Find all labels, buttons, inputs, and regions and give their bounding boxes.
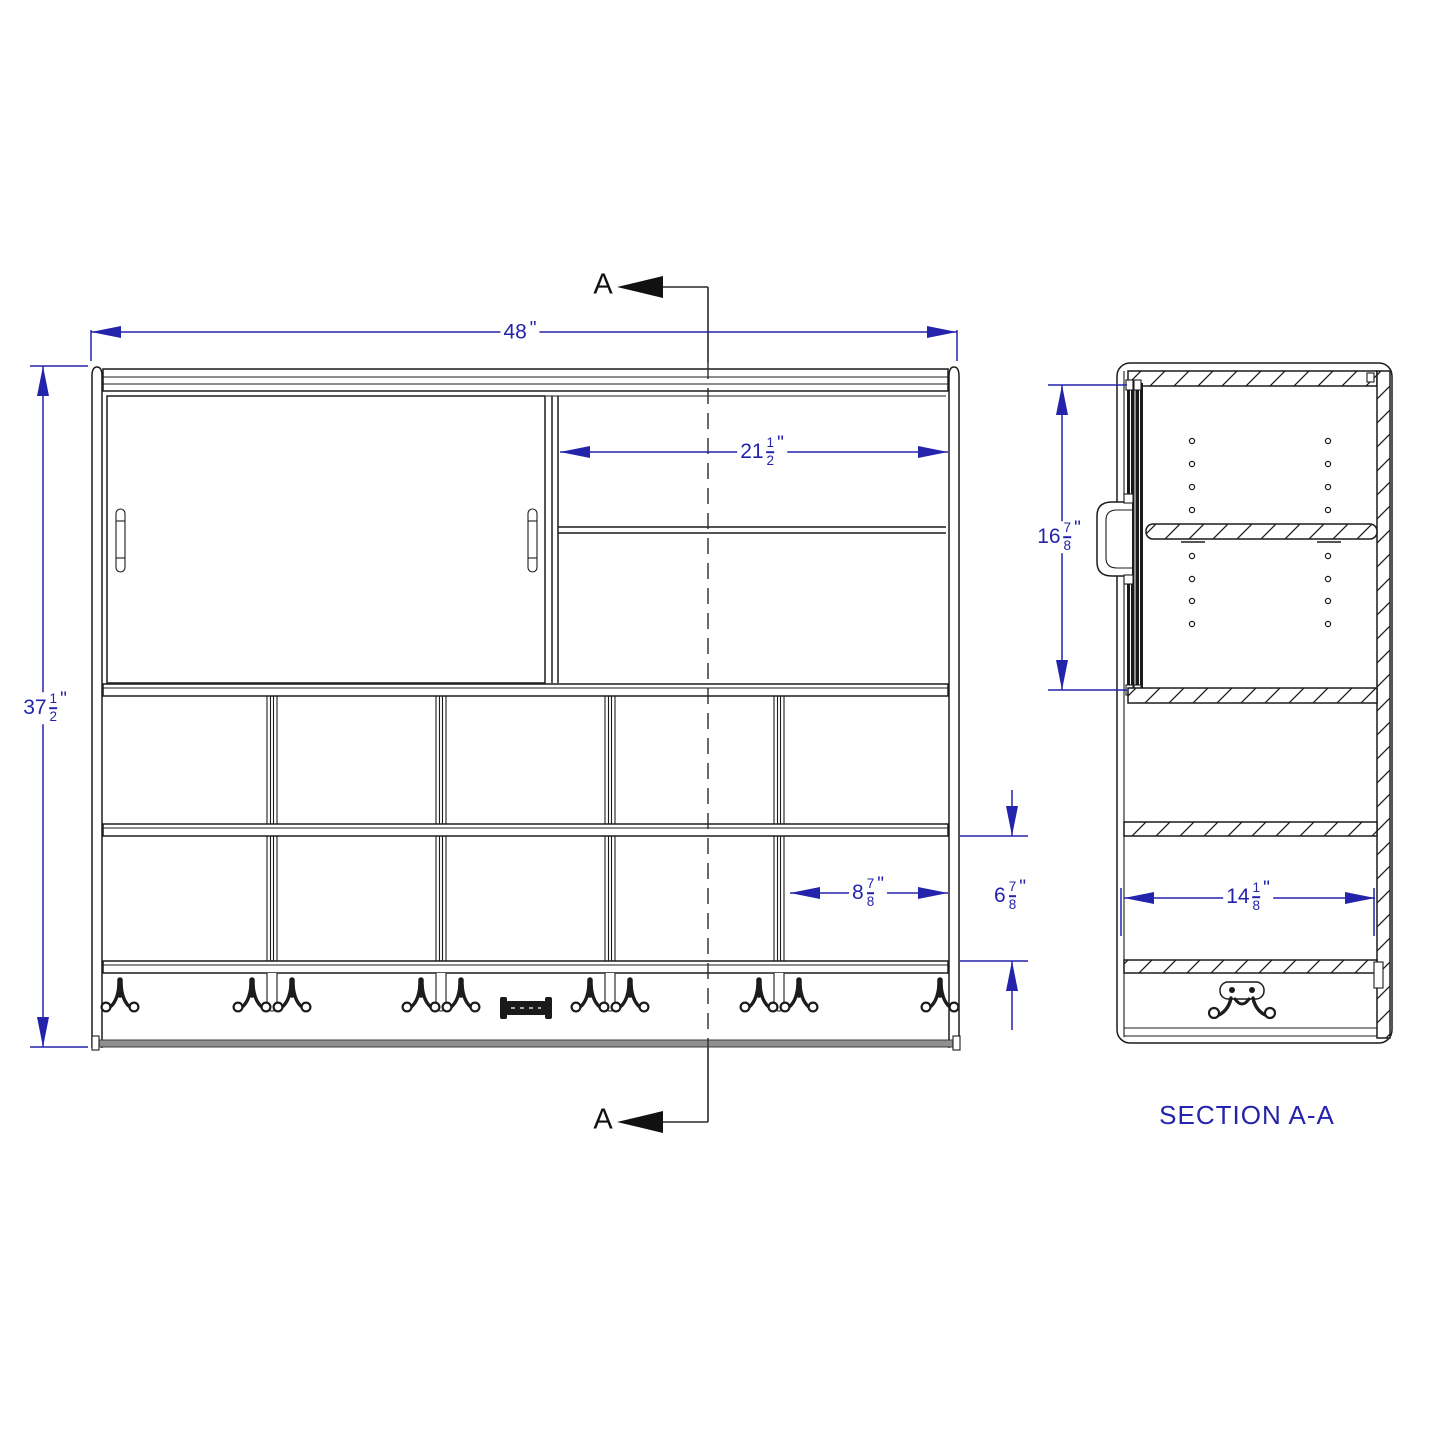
dim-door-height-label: 16 7 8 " xyxy=(1034,521,1084,553)
section-cabinet-bottom xyxy=(1128,688,1377,703)
section-marker-bottom: A xyxy=(591,1106,614,1135)
top-rail xyxy=(103,369,948,391)
section-shelf-mid xyxy=(1124,822,1377,836)
section-door-handle xyxy=(1097,494,1133,584)
fraction-numerator: 7 xyxy=(867,877,875,891)
shelf-bands xyxy=(103,684,948,973)
section-rail-end xyxy=(1374,962,1383,988)
bottom-hook-rail xyxy=(92,1036,960,1050)
section-back-panel xyxy=(1377,371,1390,1038)
fraction-denominator: 2 xyxy=(50,710,58,724)
dim-fraction: 7 8 xyxy=(1009,880,1017,912)
fraction-numerator: 1 xyxy=(1253,881,1261,895)
section-top-board xyxy=(1128,371,1377,386)
dim-value: 6 xyxy=(994,886,1006,907)
fraction-denominator: 8 xyxy=(1064,539,1072,553)
door-handle-left xyxy=(116,509,125,572)
dim-fraction: 7 8 xyxy=(867,877,875,909)
door-handle-right xyxy=(528,509,537,572)
dim-value: 21 xyxy=(740,442,763,463)
section-adjustable-shelf xyxy=(1146,524,1377,539)
dim-unit: " xyxy=(60,690,67,709)
section-cut-line xyxy=(617,276,708,1133)
dim-fraction: 1 2 xyxy=(50,692,58,724)
mounting-bracket xyxy=(500,997,552,1019)
dim-unit: " xyxy=(1263,879,1270,898)
dim-overall-height-label: 37 1 2 " xyxy=(20,692,70,724)
fraction-denominator: 8 xyxy=(1009,898,1017,912)
dim-unit: " xyxy=(1074,519,1081,538)
dim-cubby-height-label: 6 7 8 " xyxy=(991,880,1029,912)
dim-fraction: 1 2 xyxy=(767,436,775,468)
dim-unit: " xyxy=(1019,878,1026,897)
dim-value: 48 xyxy=(503,322,526,343)
section-arrow-bottom xyxy=(617,1111,663,1133)
dim-value: 8 xyxy=(852,883,864,904)
fraction-numerator: 7 xyxy=(1009,880,1017,894)
dim-value: 16 xyxy=(1037,527,1060,548)
dim-fraction: 7 8 xyxy=(1064,521,1072,553)
dim-value: 14 xyxy=(1226,887,1249,908)
section-title: SECTION A-A xyxy=(1159,1102,1335,1128)
dim-cubby-width-label: 8 7 8 " xyxy=(849,877,887,909)
fraction-numerator: 1 xyxy=(767,436,775,450)
left-sliding-door xyxy=(107,396,545,683)
dim-opening-width-label: 21 1 2 " xyxy=(737,436,787,468)
dim-fraction: 1 8 xyxy=(1253,881,1261,913)
fraction-denominator: 8 xyxy=(1253,899,1261,913)
dim-unit: " xyxy=(877,875,884,894)
front-view xyxy=(92,367,960,1050)
dim-unit: " xyxy=(777,434,784,453)
dim-depth-label: 14 1 8 " xyxy=(1223,881,1273,913)
section-shelf-low xyxy=(1124,960,1377,973)
fraction-numerator: 1 xyxy=(50,692,58,706)
left-side-wall xyxy=(92,367,102,1048)
dim-value: 37 xyxy=(23,698,46,719)
section-marker-top: A xyxy=(591,271,614,300)
fraction-denominator: 8 xyxy=(867,895,875,909)
section-view xyxy=(1097,363,1392,1043)
dim-unit: " xyxy=(530,320,537,339)
cabinet-technical-drawing xyxy=(0,0,1445,1445)
sliding-door-area xyxy=(107,396,946,683)
section-arrow-top xyxy=(617,276,663,298)
fraction-numerator: 7 xyxy=(1064,521,1072,535)
dim-overall-width-label: 48" xyxy=(500,322,539,343)
drawing-canvas: A A 48" 37 1 2 " 21 1 2 " 8 7 8 " 6 7 8 … xyxy=(0,0,1445,1445)
fraction-denominator: 2 xyxy=(767,454,775,468)
right-side-wall xyxy=(949,367,959,1048)
